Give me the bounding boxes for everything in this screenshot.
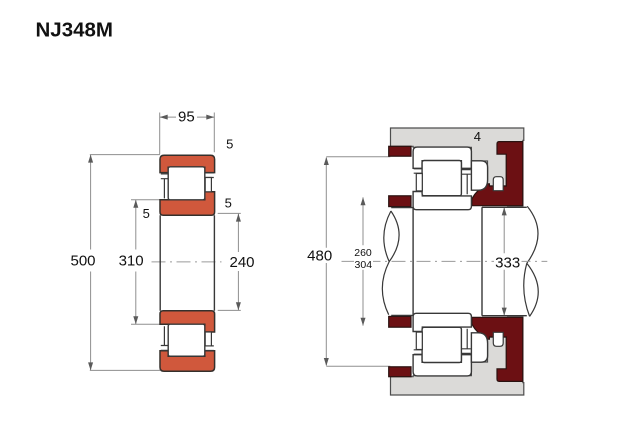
- svg-text:500: 500: [70, 252, 95, 269]
- svg-text:260: 260: [354, 247, 372, 259]
- svg-text:5: 5: [143, 206, 150, 221]
- svg-text:480: 480: [307, 248, 332, 265]
- svg-text:5: 5: [225, 195, 232, 210]
- svg-text:NJ348M: NJ348M: [36, 19, 114, 42]
- svg-text:95: 95: [178, 108, 195, 125]
- svg-text:5: 5: [226, 137, 233, 152]
- svg-text:310: 310: [119, 252, 144, 269]
- svg-text:240: 240: [229, 254, 254, 271]
- svg-text:4: 4: [474, 129, 481, 144]
- svg-text:304: 304: [355, 259, 373, 271]
- svg-text:333: 333: [495, 254, 520, 271]
